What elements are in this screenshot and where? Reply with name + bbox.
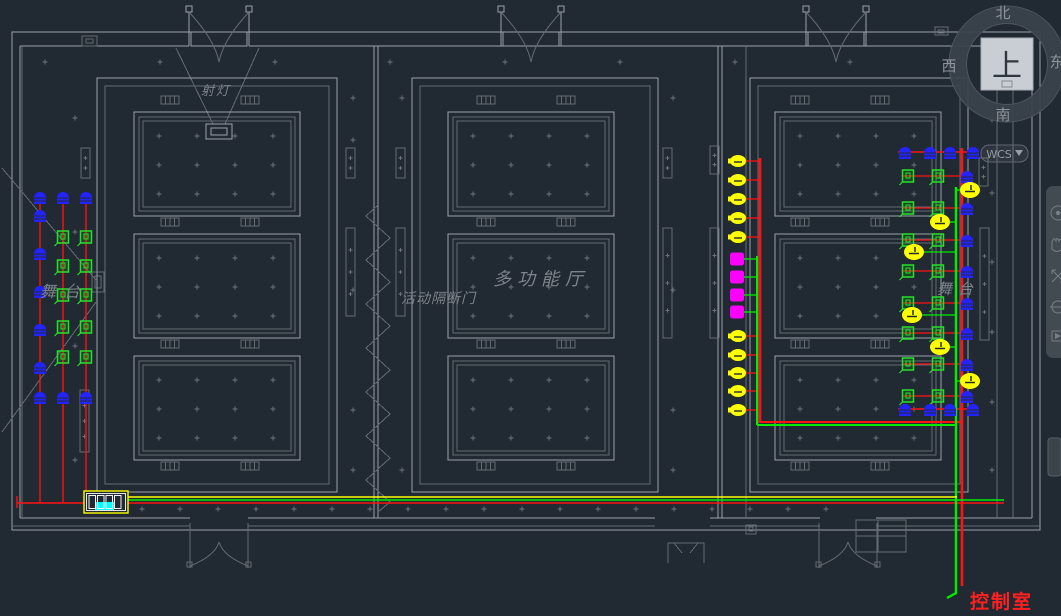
device-blue[interactable] xyxy=(34,210,46,222)
viewcube-south[interactable]: 南 xyxy=(995,106,1010,124)
navigation-wheel-hub-icon xyxy=(1056,211,1060,215)
device-blue[interactable] xyxy=(961,235,973,247)
device-blue[interactable] xyxy=(961,203,973,215)
device-magenta[interactable] xyxy=(730,271,744,284)
viewcube-west[interactable]: 西 xyxy=(941,57,956,75)
device-blue[interactable] xyxy=(961,359,973,371)
device-blue[interactable] xyxy=(944,147,956,159)
device-yellow-hl[interactable] xyxy=(960,373,980,389)
label-stage-left: 舞台 xyxy=(40,282,88,301)
label-control-room: 控制室 xyxy=(970,590,1033,613)
device-blue[interactable] xyxy=(967,404,979,416)
device-blue[interactable] xyxy=(34,362,46,374)
device-blue[interactable] xyxy=(34,392,46,404)
device-blue[interactable] xyxy=(961,298,973,310)
device-blue[interactable] xyxy=(80,192,92,204)
device-blue[interactable] xyxy=(899,147,911,159)
cad-drawing[interactable]: 射灯舞台活动隔断门多功能厅舞台控制室 上 北 南 西 东 WCS xyxy=(0,0,1061,616)
device-blue[interactable] xyxy=(34,324,46,336)
navigation-bar[interactable] xyxy=(1046,186,1061,358)
device-blue[interactable] xyxy=(961,171,973,183)
wcs-label: WCS xyxy=(986,148,1012,161)
device-blue[interactable] xyxy=(944,404,956,416)
device-yellow-hl[interactable] xyxy=(930,339,950,355)
device-blue[interactable] xyxy=(34,192,46,204)
device-yellow-hl[interactable] xyxy=(960,182,980,198)
cad-model-space[interactable]: 射灯舞台活动隔断门多功能厅舞台控制室 上 北 南 西 东 WCS xyxy=(0,0,1061,616)
device-magenta[interactable] xyxy=(730,253,744,266)
device-blue[interactable] xyxy=(924,147,936,159)
device-magenta[interactable] xyxy=(730,289,744,302)
viewcube-top-label[interactable]: 上 xyxy=(992,49,1022,84)
device-blue[interactable] xyxy=(80,392,92,404)
equipment-rack[interactable] xyxy=(84,491,128,513)
device-yellow-hl[interactable] xyxy=(904,244,924,260)
device-blue[interactable] xyxy=(34,248,46,260)
side-panel-tab[interactable] xyxy=(1048,438,1061,476)
device-magenta[interactable] xyxy=(730,306,744,319)
device-blue[interactable] xyxy=(57,392,69,404)
label-spotlight: 射灯 xyxy=(201,84,231,99)
viewcube-north[interactable]: 北 xyxy=(995,4,1010,22)
label-stage-right: 舞台 xyxy=(937,280,979,298)
wcs-dropdown[interactable]: WCS xyxy=(981,145,1028,162)
device-blue[interactable] xyxy=(899,404,911,416)
device-blue[interactable] xyxy=(961,266,973,278)
device-blue[interactable] xyxy=(961,328,973,340)
device-yellow-hl[interactable] xyxy=(902,307,922,323)
label-partition-door: 活动隔断门 xyxy=(401,291,477,307)
device-blue[interactable] xyxy=(961,391,973,403)
device-blue[interactable] xyxy=(924,404,936,416)
label-hall: 多功能厅 xyxy=(493,269,589,290)
viewcube-east[interactable]: 东 xyxy=(1049,53,1061,71)
device-blue[interactable] xyxy=(967,147,979,159)
device-yellow-hl[interactable] xyxy=(930,214,950,230)
device-blue[interactable] xyxy=(57,192,69,204)
